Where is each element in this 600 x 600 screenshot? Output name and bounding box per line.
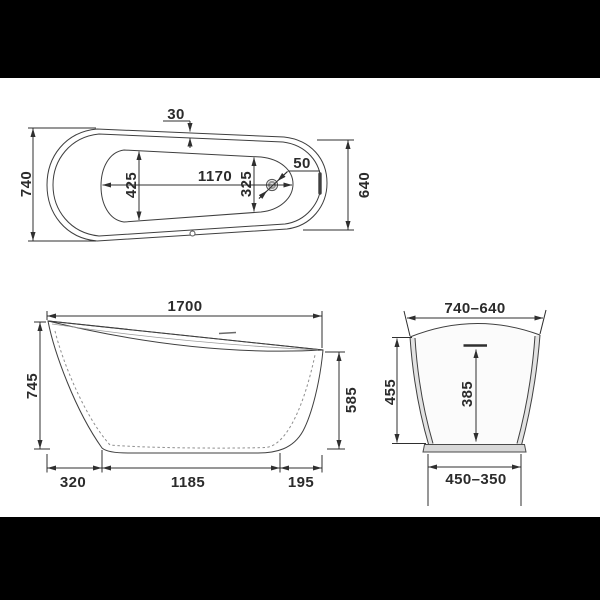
side-overflow-mark [219,333,236,334]
dim-label-450-350: 450–350 [445,471,506,488]
rim-hole-icon [190,231,195,236]
dim-label-740-640: 740–640 [444,300,505,317]
dim-label-455: 455 [382,379,399,405]
dim-label-640: 640 [356,172,373,198]
dim-label-30: 30 [167,106,185,123]
end-view-base [423,445,526,453]
dim-label-1700: 1700 [168,298,203,315]
dim-label-325: 325 [238,171,255,197]
dim-label-740: 740 [18,171,35,197]
dim-label-50: 50 [293,155,311,172]
dim-label-1185: 1185 [171,474,205,491]
dim-label-585: 585 [343,387,360,413]
dim-label-385: 385 [459,381,476,407]
dim-label-320: 320 [60,474,86,491]
dim-label-745: 745 [24,373,41,399]
technical-drawing: 30 740 640 425 1170 325 [0,0,600,600]
dim-label-1170: 1170 [198,168,232,185]
screenshot-root: 30 740 640 425 1170 325 [0,0,600,600]
dim-label-195: 195 [288,474,314,491]
